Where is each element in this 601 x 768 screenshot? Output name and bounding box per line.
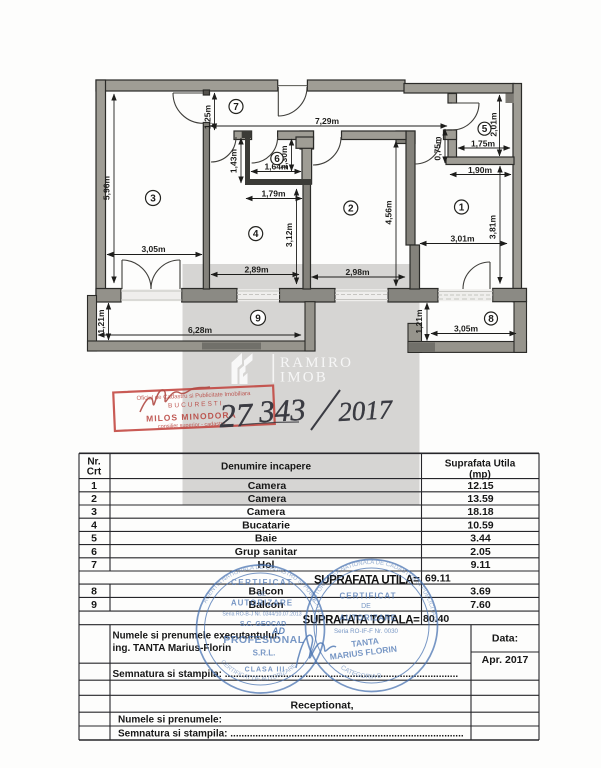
svg-text:CLASA III: CLASA III <box>245 667 286 674</box>
svg-text:Seria RO-B-J Nr. 0344/10.07.20: Seria RO-B-J Nr. 0344/10.07.2013 <box>222 612 301 618</box>
svg-text:DE: DE <box>258 592 266 598</box>
svg-text:PROFESIONAL: PROFESIONAL <box>223 634 304 646</box>
svg-text:Seria RO-IF-F Nr. 0030: Seria RO-IF-F Nr. 0030 <box>334 628 399 635</box>
svg-text:CERTIFICAT: CERTIFICAT <box>340 592 397 601</box>
svg-text:CATEGORIA B: CATEGORIA B <box>339 664 382 680</box>
svg-text:AUTORIZARE: AUTORIZARE <box>339 614 396 623</box>
svg-text:2017: 2017 <box>337 394 394 427</box>
svg-text:CERTIFICAT: CERTIFICAT <box>231 578 293 587</box>
svg-text:BUCURESTI: BUCURESTI <box>168 400 224 409</box>
svg-text:27: 27 <box>218 397 254 435</box>
svg-text:S.R.L.: S.R.L. <box>253 649 276 658</box>
svg-text:AD: AD <box>271 626 285 636</box>
svg-text:DE: DE <box>361 603 371 610</box>
svg-text:AUTORIZARE: AUTORIZARE <box>231 599 293 608</box>
